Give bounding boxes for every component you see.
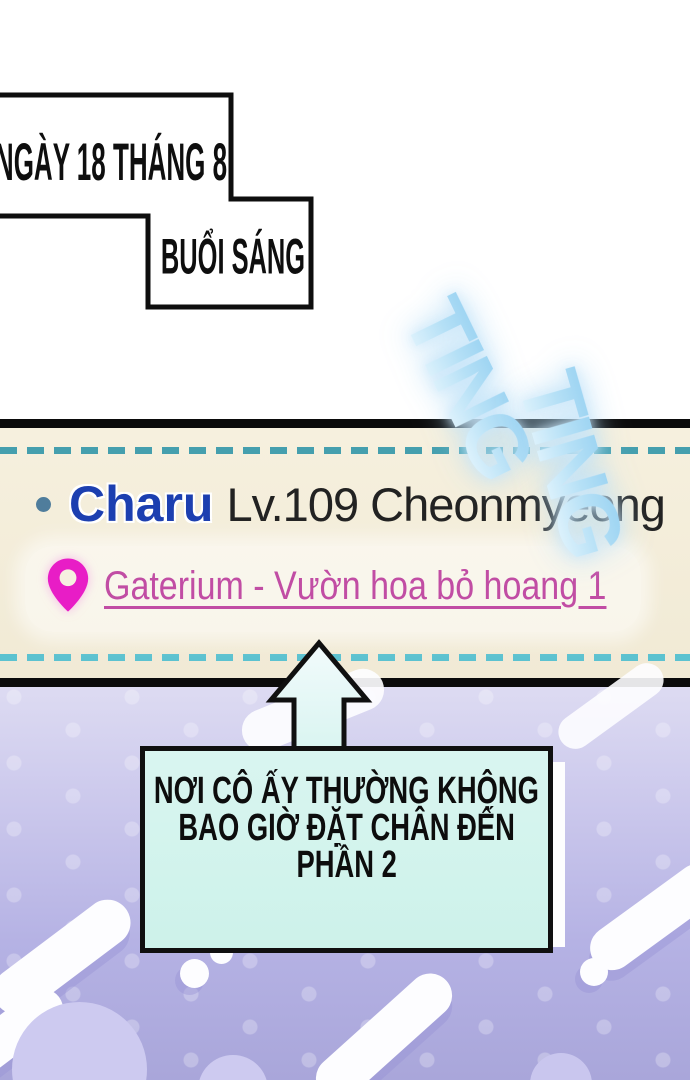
- circle-shape: [580, 958, 608, 986]
- location-link[interactable]: Gaterium - Vườn hoa bỏ hoang 1: [104, 564, 606, 609]
- caption-line: BAO GIỜ ĐẶT CHÂN ĐẾN: [178, 810, 514, 847]
- circle-shape: [180, 959, 209, 988]
- comic-page: NGÀY 18 THÁNG 8 BUỔI SÁNG Charu Lv.109 C…: [0, 0, 690, 1080]
- caption-box: NƠI CÔ ẤY THƯỜNG KHỘNG BAO GIỜ ĐẶT CHÂN …: [140, 746, 553, 953]
- date-box-text: NGÀY 18 THÁNG 8: [0, 132, 227, 193]
- bullet-dot-icon: [36, 497, 51, 512]
- map-pin-icon: [46, 557, 90, 615]
- arrow-up-icon: [255, 630, 385, 765]
- blob-shape: [530, 1053, 592, 1080]
- caption-line: NƠI CÔ ẤY THƯỜNG KHỘNG: [154, 773, 539, 810]
- time-box-text: BUỔI SÁNG: [161, 228, 305, 286]
- blob-shape: [198, 1055, 268, 1080]
- player-name: Charu: [69, 479, 213, 529]
- location-row: Gaterium - Vườn hoa bỏ hoang 1: [46, 556, 690, 616]
- capsule-shape: [307, 964, 461, 1080]
- caption-line: PHẦN 2: [296, 847, 396, 884]
- bottom-background: NƠI CÔ ẤY THƯỜNG KHỘNG BAO GIỜ ĐẶT CHÂN …: [0, 687, 690, 1080]
